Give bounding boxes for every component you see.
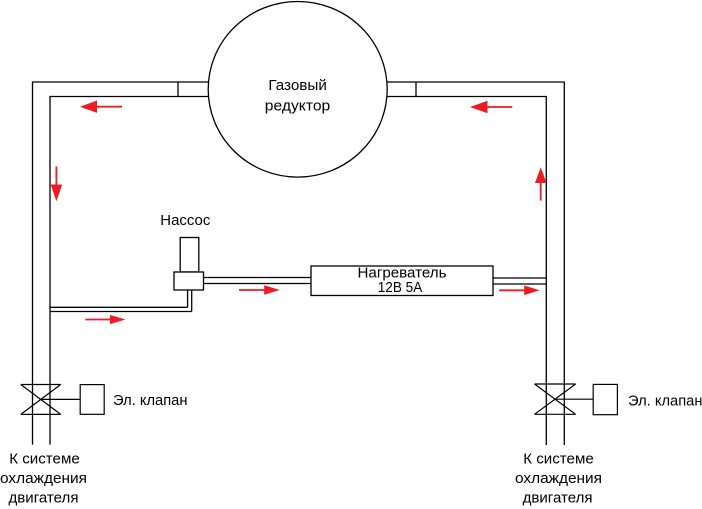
- svg-text:двигателя: двигателя: [9, 490, 79, 507]
- svg-text:Газовый: Газовый: [268, 77, 327, 94]
- svg-text:Эл. клапан: Эл. клапан: [628, 392, 702, 409]
- svg-text:Эл. клапан: Эл. клапан: [113, 392, 188, 409]
- svg-text:двигателя: двигателя: [523, 490, 593, 507]
- svg-text:охлаждения: охлаждения: [0, 470, 87, 487]
- svg-text:редуктор: редуктор: [265, 98, 331, 115]
- svg-text:охлаждения: охлаждения: [515, 470, 602, 487]
- svg-text:Нассос: Нассос: [160, 212, 210, 229]
- svg-text:К системе: К системе: [9, 451, 80, 468]
- svg-text:К системе: К системе: [523, 451, 594, 468]
- svg-text:12В 5А: 12В 5А: [378, 279, 423, 296]
